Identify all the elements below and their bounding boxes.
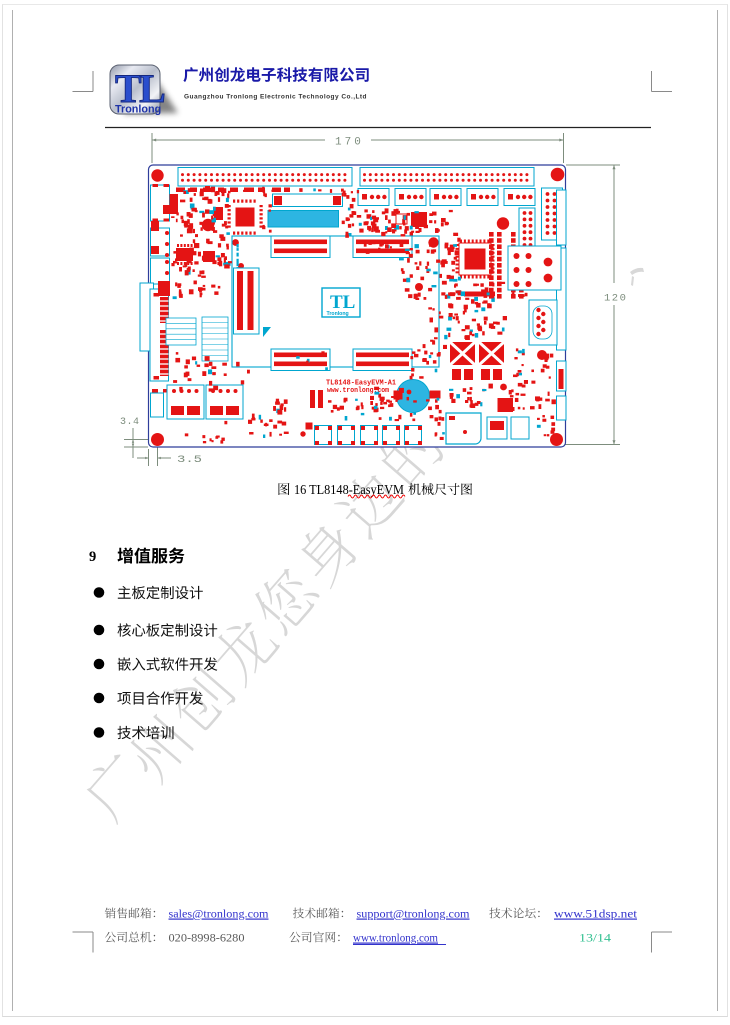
svg-text:www.51dsp.net: www.51dsp.net xyxy=(554,907,638,921)
svg-text:TL: TL xyxy=(330,292,355,313)
svg-text:170: 170 xyxy=(335,137,364,149)
svg-text:9: 9 xyxy=(89,549,96,565)
svg-text:3.5: 3.5 xyxy=(177,455,202,466)
svg-text:Guangzhou Tronlong Electronic: Guangzhou Tronlong Electronic Technology… xyxy=(184,94,367,101)
svg-text:Tronlong: Tronlong xyxy=(115,104,161,116)
svg-text:www.tronlong.com: www.tronlong.com xyxy=(353,931,439,945)
svg-text:120: 120 xyxy=(604,293,627,305)
svg-text:13/14: 13/14 xyxy=(579,931,611,945)
svg-text:3.4: 3.4 xyxy=(120,417,140,428)
svg-text:sales@tronlong.com: sales@tronlong.com xyxy=(169,907,270,921)
svg-text:Tronlong: Tronlong xyxy=(327,311,349,317)
svg-text:support@tronlong.com: support@tronlong.com xyxy=(357,907,471,921)
svg-text:020-8998-6280: 020-8998-6280 xyxy=(169,931,245,945)
